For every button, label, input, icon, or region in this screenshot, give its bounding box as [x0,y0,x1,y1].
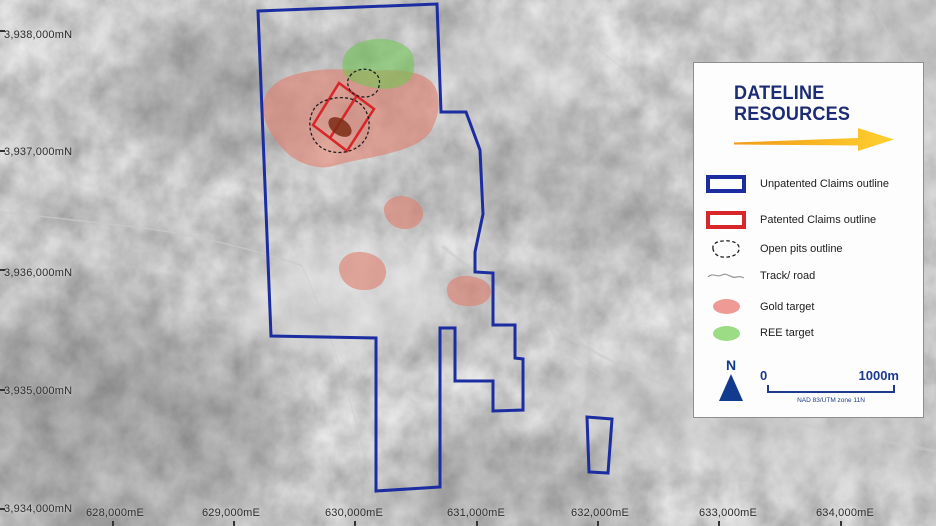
scale-end-label: 1000m [839,368,899,383]
northing-tick [0,508,5,510]
brand-logo: DATELINE RESOURCES [734,83,850,125]
easting-label: 629,000mE [202,507,260,519]
legend-swatch-wrap [702,175,750,193]
brand-line-1: DATELINE [734,83,850,104]
northing-label: 3,934,000mN [4,503,72,515]
northing-tick [0,389,5,391]
legend-swatch-wrap [702,237,750,261]
easting-tick [112,521,114,526]
north-label: N [718,357,744,373]
legend-item-label: Unpatented Claims outline [760,178,889,190]
track-inner [302,266,376,502]
easting-tick [718,521,720,526]
gold-target-middle [384,196,423,229]
unpatented-claims-outline-small [587,417,612,473]
patented-claims-swatch [706,211,746,229]
northing-label: 3,936,000mN [4,267,72,279]
easting-label: 632,000mE [571,507,629,519]
map-figure: 3,938,000mN3,937,000mN3,936,000mN3,935,0… [0,0,936,526]
legend-item-ree: REE target [702,320,814,346]
gold-target-lower-left [339,252,386,290]
wash-top-center [560,8,640,78]
northing-tick [0,150,5,152]
northing-tick [0,30,5,32]
legend-item-open-pit: Open pits outline [702,236,843,262]
legend-swatch-wrap [702,326,750,341]
easting-tick [354,521,356,526]
easting-label: 628,000mE [86,507,144,519]
legend-item-label: REE target [760,327,814,339]
legend-swatch-wrap [702,299,750,314]
open-pit-swatch [708,237,744,261]
easting-tick [840,521,842,526]
legend-item-label: Track/ road [760,270,815,282]
legend-item-label: Open pits outline [760,243,843,255]
track-road-west [0,212,302,266]
easting-label: 634,000mE [816,507,874,519]
brand-arrow-icon [730,121,900,155]
northing-label: 3,935,000mN [4,385,72,397]
easting-tick [476,521,478,526]
easting-tick [233,521,235,526]
legend-item-gold: Gold target [702,294,814,320]
track-road-swatch [707,268,745,284]
ree-target-swatch [713,326,740,341]
northing-label: 3,938,000mN [4,29,72,41]
wash-branch [545,322,605,378]
north-arrow-icon [719,374,743,401]
legend-item-unpatented-rect: Unpatented Claims outline [702,171,889,197]
easting-label: 633,000mE [699,507,757,519]
gold-target-main [263,69,439,167]
legend-panel: DATELINE RESOURCES Unpatented Claims out… [693,62,924,418]
easting-tick [597,521,599,526]
legend-item-track: Track/ road [702,263,815,289]
ree-target-blob [342,39,414,89]
unpatented-claims-swatch [706,175,746,193]
legend-swatch-wrap [702,268,750,284]
legend-swatch-wrap [702,211,750,229]
northing-label: 3,937,000mN [4,146,72,158]
easting-label: 631,000mE [447,507,505,519]
easting-label: 630,000mE [325,507,383,519]
northing-tick [0,269,5,271]
legend-item-patented-rect: Patented Claims outline [702,207,876,233]
scale-start-label: 0 [760,368,767,383]
legend-item-label: Patented Claims outline [760,214,876,226]
legend-item-label: Gold target [760,301,814,313]
scale-datum-label: NAD 83/UTM zone 11N [749,397,913,404]
gold-target-swatch [713,299,740,314]
scale-bar [767,385,895,393]
